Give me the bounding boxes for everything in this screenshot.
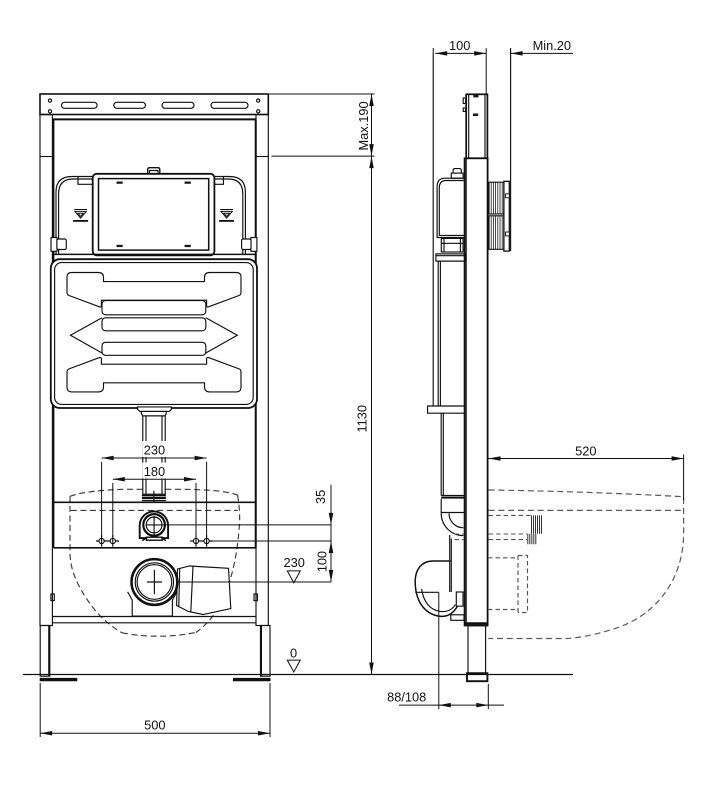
- svg-text:230: 230: [144, 443, 165, 458]
- svg-text:230: 230: [284, 555, 305, 570]
- svg-text:88/108: 88/108: [387, 690, 426, 705]
- svg-text:100: 100: [449, 38, 470, 53]
- svg-text:0: 0: [290, 646, 297, 661]
- svg-text:35: 35: [313, 490, 328, 504]
- svg-text:Min.20: Min.20: [533, 38, 571, 53]
- svg-text:180: 180: [144, 464, 165, 479]
- svg-text:1130: 1130: [354, 405, 369, 433]
- svg-text:Max.190: Max.190: [356, 101, 371, 150]
- svg-text:100: 100: [315, 551, 330, 572]
- svg-text:500: 500: [144, 718, 165, 733]
- svg-text:520: 520: [575, 443, 596, 458]
